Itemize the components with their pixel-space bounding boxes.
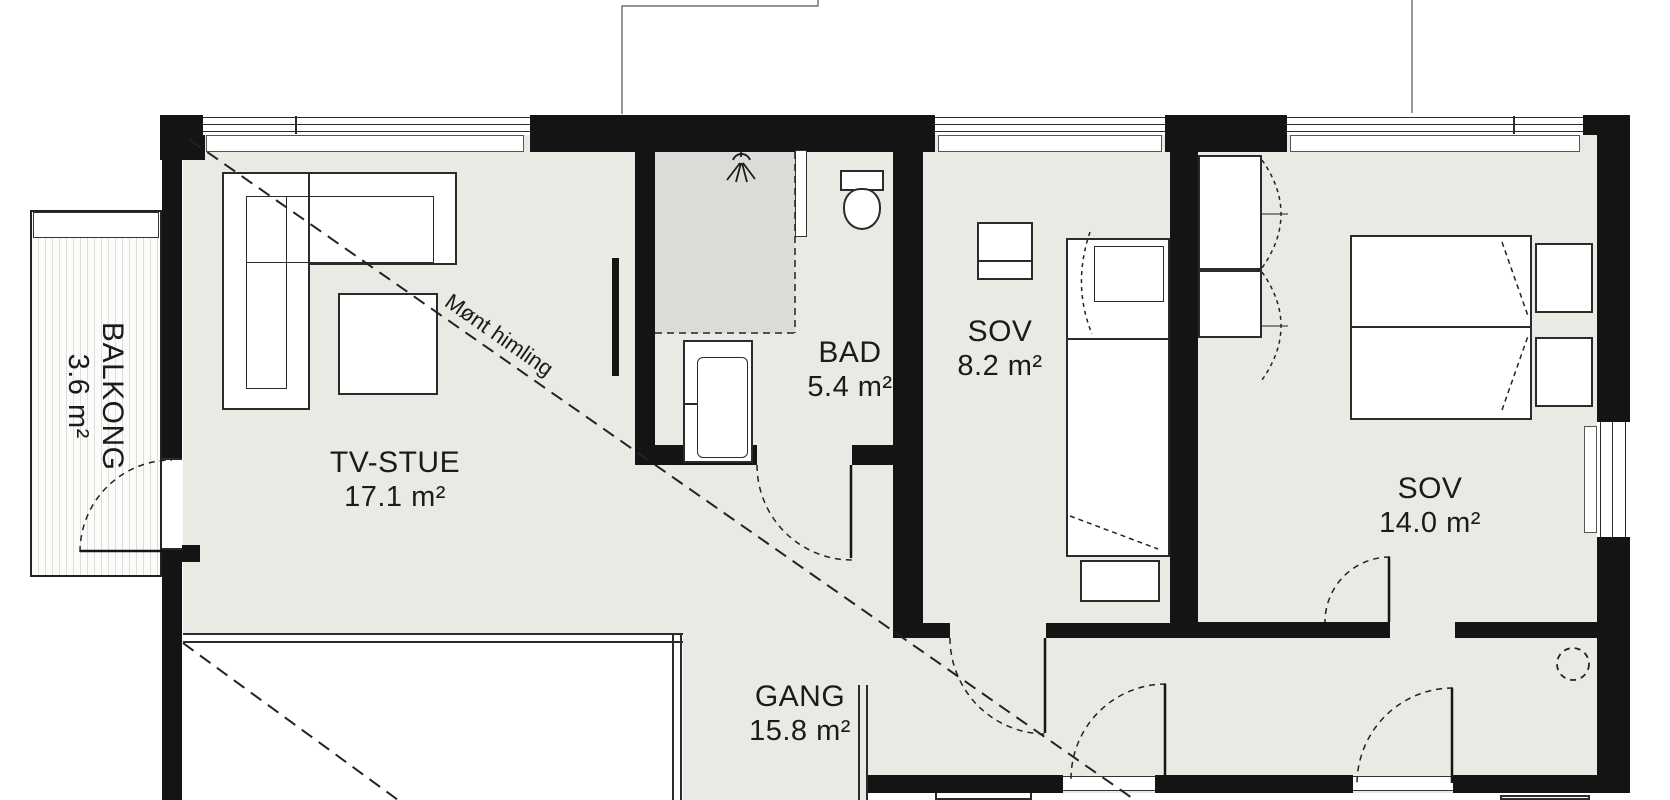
label-bedroom-small-name: SOV <box>930 315 1070 350</box>
label-bedroom-large: SOV 14.0 m² <box>1360 472 1500 540</box>
corridor-door-arc <box>1357 688 1453 783</box>
bed-large-blanket-fold-top <box>1502 242 1528 316</box>
wardrobe-door-ticks <box>1262 214 1288 326</box>
label-bathroom-area: 5.4 m² <box>780 371 920 405</box>
bed-small-blanket-fold <box>1070 516 1158 549</box>
label-hallway: GANG 15.8 m² <box>730 680 870 748</box>
label-bedroom-large-area: 14.0 m² <box>1360 507 1500 541</box>
bed-small-headboard-arc <box>1081 232 1092 334</box>
label-balcony-name: BALKONG <box>94 316 129 476</box>
label-tv-room-area: 17.1 m² <box>275 481 515 515</box>
label-bedroom-large-name: SOV <box>1360 472 1500 507</box>
ceiling-ridge-line-2 <box>183 643 398 800</box>
shower-icon <box>727 152 755 182</box>
bottom-room-door-arc <box>1071 684 1166 779</box>
shower-enclosure-dashed <box>655 152 795 333</box>
label-bedroom-small: SOV 8.2 m² <box>930 315 1070 383</box>
label-balcony-area: 3.6 m² <box>61 316 95 476</box>
label-hallway-name: GANG <box>730 680 870 715</box>
bed-large-blanket-fold-bottom <box>1502 336 1528 410</box>
label-bathroom-name: BAD <box>780 336 920 371</box>
bathroom-door-arc <box>757 465 852 560</box>
ceiling-lamp-icon <box>1557 648 1589 680</box>
leader-line-left <box>622 0 818 114</box>
label-tv-room: TV-STUE 17.1 m² <box>275 446 515 514</box>
label-balcony: BALKONG 3.6 m² <box>61 316 129 476</box>
label-bedroom-small-area: 8.2 m² <box>930 350 1070 384</box>
label-hallway-area: 15.8 m² <box>730 715 870 749</box>
bedroom-small-door-arc <box>950 638 1046 734</box>
label-tv-room-name: TV-STUE <box>275 446 515 481</box>
bedroom-large-door-arc <box>1325 557 1390 622</box>
label-bathroom: BAD 5.4 m² <box>780 336 920 404</box>
floor-plan: BALKONG 3.6 m² TV-STUE 17.1 m² BAD 5.4 m… <box>0 0 1670 800</box>
